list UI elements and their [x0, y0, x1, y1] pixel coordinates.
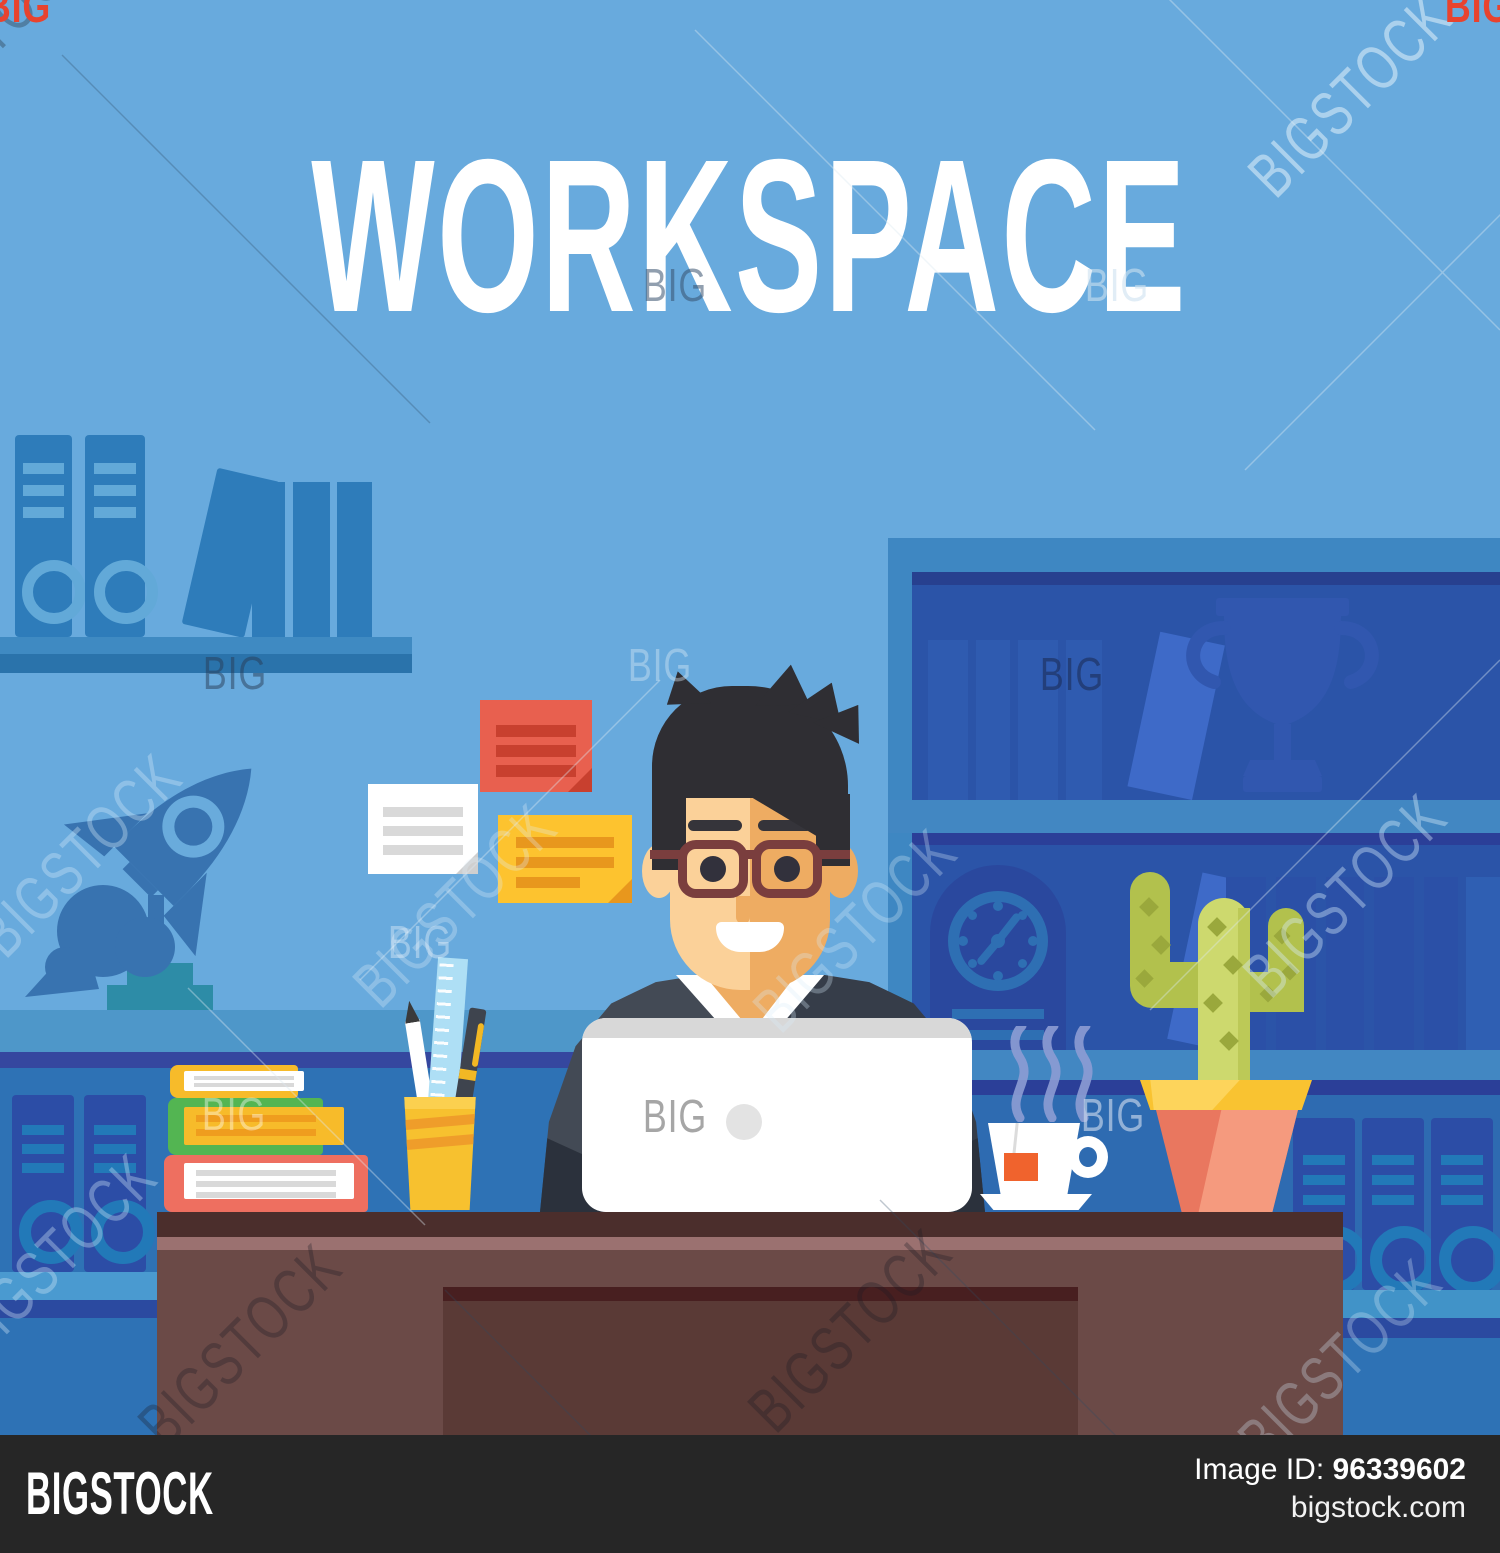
- sticky-note-red: [480, 700, 592, 792]
- binder-stripe: [94, 463, 136, 474]
- cactus-elbow-left: [1130, 962, 1202, 1008]
- book: [293, 482, 330, 638]
- footer-bar: BIGSTOCK Image ID: 96339602 bigstock.com: [0, 1435, 1500, 1553]
- man-smile: [716, 922, 784, 952]
- binder-stripe: [1372, 1195, 1414, 1205]
- binder-stripe: [22, 1163, 64, 1173]
- binder: [84, 1095, 146, 1272]
- binder-stripe: [1303, 1175, 1345, 1185]
- binder-stripe: [22, 1144, 64, 1154]
- book: [1424, 877, 1458, 1050]
- bookcase-divider: [888, 800, 1500, 833]
- cabinet-shelf-board: [0, 1272, 160, 1300]
- cup-body: [988, 1123, 1080, 1196]
- binder-stripe: [23, 463, 64, 474]
- binder-ring: [94, 560, 158, 624]
- laptop: [582, 1018, 972, 1212]
- book-pages: [184, 1163, 354, 1199]
- shelf-board-bottom: [0, 654, 412, 673]
- binder-stripe: [1303, 1155, 1345, 1165]
- glasses-temple-left: [650, 850, 680, 859]
- note-line: [383, 826, 463, 836]
- bookcase-divider-edge: [912, 833, 1500, 845]
- binder-stripe: [94, 485, 136, 496]
- tea-string: [1012, 1123, 1018, 1155]
- sticky-note-white: [368, 784, 478, 874]
- man-eye-right: [774, 856, 800, 882]
- cactus-elbow-right: [1248, 972, 1304, 1012]
- note-line: [516, 877, 580, 888]
- binder: [85, 435, 145, 637]
- note-line: [496, 765, 576, 777]
- binder: [12, 1095, 74, 1272]
- binder-stripe: [1372, 1155, 1414, 1165]
- bookcase-top-edge: [912, 572, 1500, 585]
- note-fold: [456, 852, 478, 874]
- man-eye-left: [700, 856, 726, 882]
- desk-top: [157, 1212, 1343, 1237]
- binder-stripe: [23, 507, 64, 518]
- image-id-label: Image ID:: [1194, 1453, 1324, 1486]
- binder-stripe: [1441, 1155, 1483, 1165]
- clock-tick: [958, 936, 968, 946]
- book: [1018, 640, 1058, 800]
- binder-stripe: [1372, 1175, 1414, 1185]
- footer-brand: BIGSTOCK: [26, 1459, 214, 1528]
- book: [252, 482, 285, 638]
- desk-stripe: [157, 1237, 1343, 1250]
- clock-tick: [993, 901, 1003, 911]
- trophy-icon: [1180, 598, 1385, 800]
- cup-stripe: [402, 1134, 479, 1151]
- sticky-note-yellow: [498, 815, 632, 903]
- rocket-icon: [25, 735, 315, 1015]
- book: [976, 640, 1010, 800]
- footer-site: bigstock.com: [1194, 1489, 1466, 1527]
- binder: [1362, 1118, 1424, 1290]
- cup-highlight: [402, 1097, 478, 1109]
- binder-ring: [19, 1200, 83, 1264]
- footer-image-info: Image ID: 96339602 bigstock.com: [1194, 1451, 1466, 1527]
- glasses-bridge: [742, 850, 758, 859]
- image-id-value: 96339602: [1333, 1453, 1466, 1486]
- cactus-trunk-shade: [1238, 908, 1250, 1084]
- saucer: [980, 1194, 1092, 1210]
- man-nose: [736, 896, 750, 924]
- laptop-logo: [726, 1104, 762, 1140]
- desk-knee-hole: [443, 1287, 1078, 1435]
- note-line: [383, 807, 463, 817]
- binder-stripe: [1441, 1175, 1483, 1185]
- binder: [15, 435, 72, 637]
- note-line: [516, 857, 614, 868]
- book-pages: [184, 1107, 344, 1145]
- binder-stripe: [23, 485, 64, 496]
- page-title: WORKSPACE: [0, 112, 1500, 362]
- binder-stripe: [94, 507, 136, 518]
- stock-image-preview: WORKSPACE: [0, 0, 1500, 1553]
- book: [1466, 877, 1500, 1050]
- clock-tick: [968, 911, 977, 920]
- clock-tick: [968, 959, 977, 968]
- wall-shelf: [0, 430, 420, 680]
- cup-stripe: [402, 1114, 479, 1131]
- page-line: [196, 1115, 316, 1122]
- book: [1326, 877, 1364, 1050]
- pen-band: [459, 1069, 477, 1082]
- note-line: [516, 837, 614, 848]
- binder-ring: [1370, 1226, 1438, 1294]
- binder-stripe: [94, 1144, 136, 1154]
- page-line: [196, 1129, 316, 1136]
- cabinet-shelf-edge: [0, 1300, 160, 1318]
- desk-knee-hole-edge: [443, 1287, 1078, 1301]
- clock-tick: [1018, 959, 1027, 968]
- shelf-board-top: [0, 637, 412, 654]
- pencil-cup: [402, 1097, 478, 1210]
- note-line: [383, 845, 463, 855]
- stacked-book-green: [168, 1098, 323, 1155]
- page-line: [196, 1170, 336, 1176]
- book: [1066, 640, 1102, 800]
- page-title-text: WORKSPACE: [312, 112, 1189, 362]
- stacked-book-yellow: [170, 1065, 298, 1098]
- binder-stripe: [1303, 1195, 1345, 1205]
- clock-tick: [1028, 936, 1038, 946]
- note-line: [496, 745, 576, 757]
- stacked-book-red: [164, 1155, 368, 1212]
- image-id-row: Image ID: 96339602: [1194, 1451, 1466, 1489]
- book: [337, 482, 372, 638]
- page-line: [194, 1083, 294, 1087]
- book: [928, 640, 968, 800]
- bookcase-bottom-board: [888, 1050, 1500, 1080]
- desk: [157, 1212, 1343, 1435]
- tea-tag: [1004, 1153, 1038, 1181]
- man-eyebrow-left: [688, 820, 742, 831]
- pot-rim-highlight: [1140, 1080, 1312, 1110]
- page-line: [194, 1076, 294, 1080]
- note-fold: [608, 879, 632, 903]
- page-line: [196, 1192, 336, 1198]
- binder: [1431, 1118, 1493, 1290]
- binder-stripe: [94, 1163, 136, 1173]
- binder-stripe: [94, 1125, 136, 1135]
- binder-stripe: [1441, 1195, 1483, 1205]
- clock-tick: [993, 971, 1003, 981]
- steam-icon: [1008, 1026, 1100, 1122]
- book-pages: [184, 1071, 304, 1091]
- page-line: [196, 1181, 336, 1187]
- binder-stripe: [22, 1125, 64, 1135]
- bookcase-top-frame: [888, 538, 1500, 572]
- binder-ring: [91, 1200, 155, 1264]
- laptop-top-edge: [582, 1018, 972, 1038]
- book: [1374, 877, 1414, 1050]
- binder-ring: [22, 560, 86, 624]
- clock-tick: [1018, 911, 1027, 920]
- glasses-temple-right: [820, 850, 850, 859]
- pot-rim: [1140, 1080, 1312, 1110]
- binder-ring: [1439, 1226, 1500, 1294]
- note-line: [496, 725, 576, 737]
